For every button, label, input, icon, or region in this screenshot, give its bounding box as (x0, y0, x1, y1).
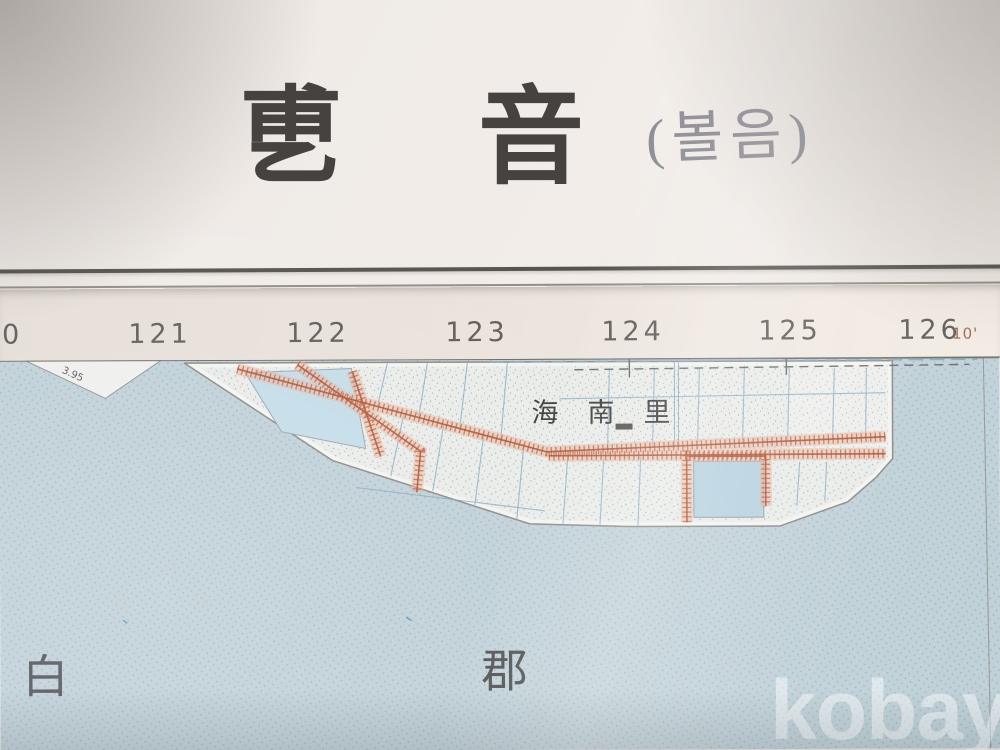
district-char-left: 白 (22, 652, 68, 703)
map-title-char-1: 乶 (238, 86, 344, 192)
photo-of-map-sheet: 乶 音 (볼음) 20 121 122 123 124 125 126 10' (0, 0, 1000, 750)
map-title-char-2: 音 (478, 86, 584, 192)
grid-label-120: 20 (0, 319, 23, 350)
title-margin-area: 乶 音 (볼음) (0, 0, 1000, 287)
grid-label-122: 122 (286, 318, 350, 349)
reservoir-east (694, 461, 764, 517)
village-label: 海南里 (531, 397, 699, 428)
district-char-center: 郡 (481, 646, 527, 697)
handwritten-annotation: (볼음) (645, 101, 816, 175)
grid-label-124: 124 (601, 316, 665, 347)
grid-label-123: 123 (445, 317, 509, 348)
minute-label: 10' (952, 324, 978, 342)
coordinate-strip: 20 121 122 123 124 125 126 10' (0, 284, 1000, 362)
grid-label-125: 125 (758, 315, 822, 346)
watermark: kobay (770, 662, 1000, 750)
grid-label-121: 121 (128, 319, 192, 350)
